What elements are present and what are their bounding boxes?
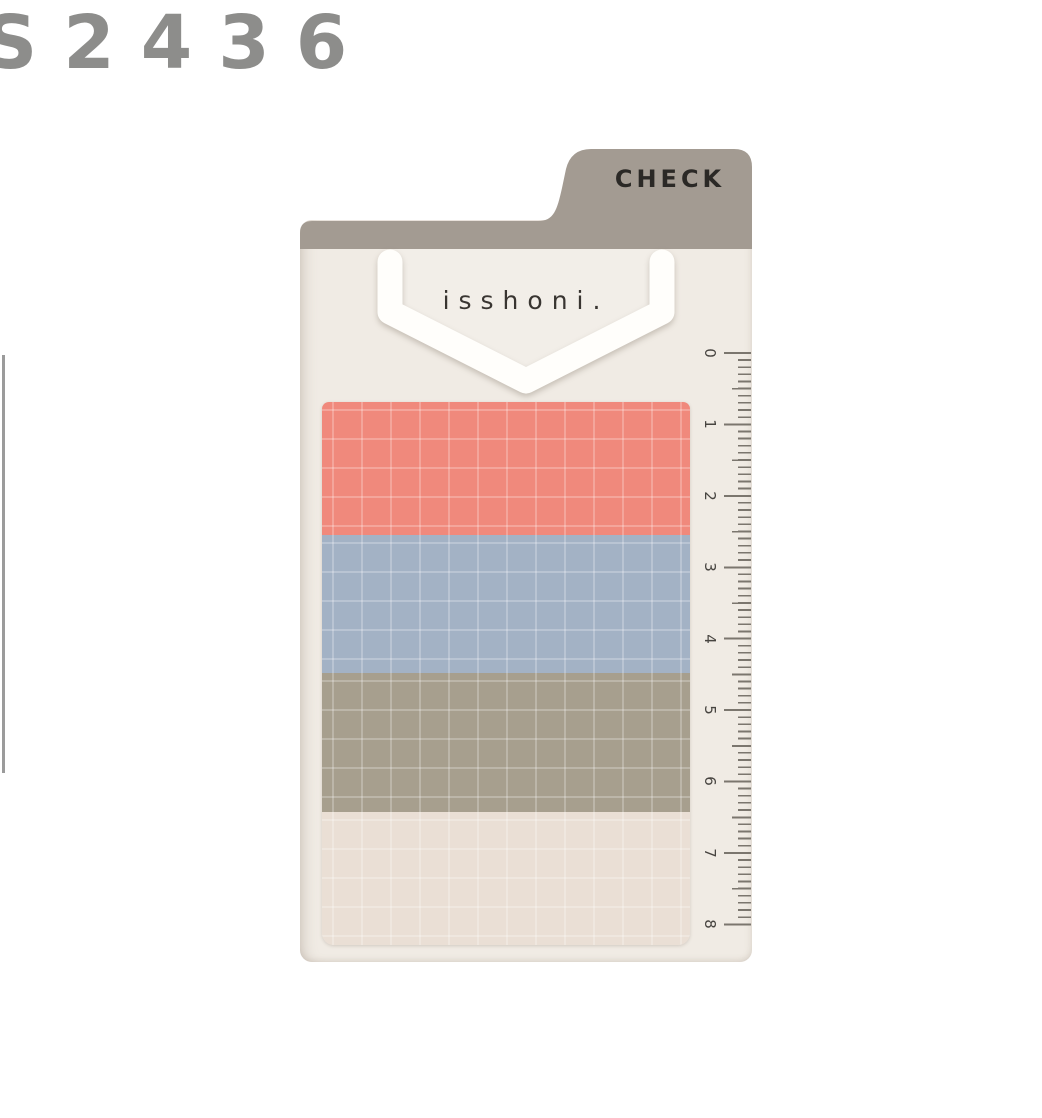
check-tab bbox=[300, 147, 752, 249]
note-pad-coral bbox=[322, 402, 690, 535]
product-code: S2436 bbox=[0, 0, 373, 86]
note-pad-cream bbox=[322, 812, 690, 945]
note-pad-taupe bbox=[322, 673, 690, 812]
tab-label: CHECK bbox=[588, 164, 752, 194]
product-photo: S2436 CHECK isshoni. 0 1 2 3 4 bbox=[0, 0, 1042, 1118]
left-crop-line bbox=[2, 355, 5, 773]
note-pad-blue-gray bbox=[322, 535, 690, 673]
clip-icon bbox=[360, 237, 692, 417]
clip-inner-panel bbox=[390, 249, 662, 381]
brand-text: isshoni. bbox=[366, 287, 686, 315]
sticky-notes-card: CHECK isshoni. 0 1 2 3 4 5 6 7 8 bbox=[300, 147, 752, 962]
note-pads bbox=[322, 402, 690, 945]
